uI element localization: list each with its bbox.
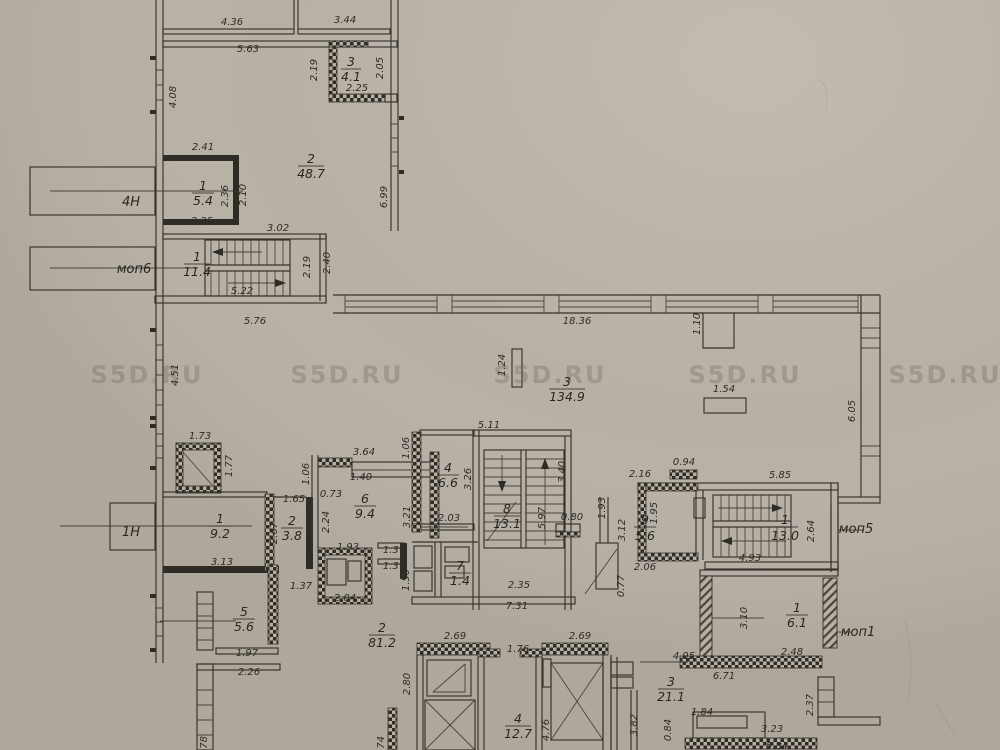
dim-label: 1.37: [383, 545, 406, 556]
svg-text:1: 1: [781, 512, 789, 527]
dim-label: 2.41: [192, 142, 214, 153]
dim-label: 6.99: [379, 186, 390, 208]
svg-text:48.7: 48.7: [297, 166, 325, 181]
dim-label: 2.19: [309, 59, 320, 81]
svg-text:1.4: 1.4: [450, 573, 470, 588]
dim-label: 1.84: [691, 707, 713, 718]
svg-text:2: 2: [288, 513, 296, 528]
dim-label: 1.65: [283, 494, 305, 505]
dim-label: 4.95: [673, 651, 695, 662]
watermark: S5D.RU: [689, 361, 802, 389]
svg-text:7: 7: [456, 558, 464, 573]
svg-text:134.9: 134.9: [549, 389, 585, 404]
svg-text:6.6: 6.6: [438, 475, 458, 490]
dim-label: 1.10: [692, 313, 703, 335]
dim-label: 1.97: [236, 648, 259, 659]
dim-label: 2.69: [569, 631, 591, 642]
dim-label: 1.93: [337, 542, 359, 553]
dim-label: 2.19: [302, 256, 313, 278]
svg-text:6.1: 6.1: [787, 615, 807, 630]
svg-text:2: 2: [378, 620, 386, 635]
dim-label: 0.84: [663, 719, 674, 741]
svg-text:1: 1: [216, 511, 224, 526]
svg-text:81.2: 81.2: [368, 635, 396, 650]
dim-label: 2.80: [402, 673, 413, 695]
dim-label: 2.06: [634, 562, 656, 573]
dim-label: 1.54: [713, 384, 735, 395]
dim-label: 4.51: [170, 364, 181, 386]
dim-label: 0.80: [561, 512, 583, 523]
svg-text:3.8: 3.8: [282, 528, 302, 543]
dim-label: 2.64: [806, 520, 817, 542]
dim-label: 3.26: [463, 468, 474, 490]
svg-text:11.4: 11.4: [183, 264, 211, 279]
dim-label: 3.44: [334, 15, 356, 26]
dim-label: 2.35: [508, 580, 530, 591]
dim-label: 4.08: [168, 86, 179, 108]
dim-label: 2.37: [805, 693, 816, 716]
dim-label: 4.93: [739, 553, 761, 564]
floor-plan-drawing: S5D.RU S5D.RU S5D.RU S5D.RU S5D.RU 15.4 …: [0, 0, 1000, 750]
dim-label: 3.23: [761, 724, 783, 735]
svg-text:1: 1: [199, 178, 207, 193]
dim-label: 2.24: [321, 511, 332, 533]
dim-label: 2.48: [781, 647, 803, 658]
dim-label: 1.76: [507, 644, 529, 655]
dim-label: 1.93: [597, 497, 608, 519]
dim-label: 5.97: [537, 506, 548, 529]
svg-text:3: 3: [347, 54, 355, 69]
dim-label: 2.05: [375, 57, 386, 79]
dim-label: 1.37: [290, 581, 313, 592]
dim-label: .78: [199, 736, 210, 750]
dim-label: 0.77: [616, 574, 627, 597]
svg-text:12.7: 12.7: [504, 726, 532, 741]
dim-label: 2.10: [238, 184, 249, 206]
dim-label: 1.40: [350, 472, 372, 483]
dim-label: 2.67: [269, 521, 280, 544]
dim-label: 6.05: [847, 400, 858, 422]
dim-label: 1.50: [401, 569, 412, 591]
dim-label: 5.22: [231, 286, 253, 297]
dim-label: 18.36: [563, 316, 592, 327]
dim-label: 5.11: [478, 420, 500, 431]
porch-label: моп5: [839, 522, 874, 537]
dim-label: 2.25: [191, 216, 213, 227]
dim-label: 3.40: [557, 461, 568, 483]
svg-text:5: 5: [240, 604, 248, 619]
dim-label: 3.10: [739, 607, 750, 629]
watermark: S5D.RU: [91, 361, 204, 389]
porch-label: 1Н: [122, 525, 140, 540]
svg-text:2: 2: [307, 151, 315, 166]
dim-label: 2.25: [346, 83, 368, 94]
dim-label: 2.36: [220, 185, 231, 207]
svg-text:6: 6: [361, 491, 369, 506]
watermark: S5D.RU: [291, 361, 404, 389]
floor-plan-scan: S5D.RU S5D.RU S5D.RU S5D.RU S5D.RU 15.4 …: [0, 0, 1000, 750]
dim-label: 1.06: [401, 437, 412, 459]
dim-label: 3.21: [402, 506, 413, 528]
dim-label: 3.64: [353, 447, 375, 458]
dim-label: 7.31: [506, 601, 528, 612]
dim-label: 0.94: [673, 457, 695, 468]
dim-label: 2.26: [238, 667, 260, 678]
dim-label: 5.63: [237, 44, 259, 55]
svg-text:13.0: 13.0: [771, 528, 799, 543]
dim-label: 5.76: [244, 316, 266, 327]
dim-label: 2.40: [322, 252, 333, 274]
dim-label: 3.02: [267, 223, 289, 234]
svg-text:5.6: 5.6: [635, 528, 655, 543]
svg-text:4: 4: [444, 460, 452, 475]
svg-text:1: 1: [193, 249, 201, 264]
svg-text:13.1: 13.1: [493, 516, 521, 531]
dim-label: 2.69: [444, 631, 466, 642]
dim-label: 3.82: [629, 714, 640, 736]
svg-text:9: 9: [641, 512, 649, 527]
dim-label: 2.04: [334, 593, 356, 604]
dim-label: 4.36: [221, 17, 243, 28]
dim-label: 3.13: [211, 557, 233, 568]
porch-label: моп1: [841, 625, 876, 640]
dim-label: 1.73: [189, 431, 211, 442]
watermark: S5D.RU: [494, 361, 607, 389]
svg-text:9.2: 9.2: [210, 526, 230, 541]
dim-label: 4.76: [541, 719, 552, 741]
dim-label: 6.71: [713, 671, 735, 682]
dim-label: 2.16: [629, 469, 651, 480]
svg-text:21.1: 21.1: [657, 689, 685, 704]
svg-text:5.6: 5.6: [234, 619, 254, 634]
svg-text:3: 3: [667, 674, 675, 689]
dim-label: 1.95: [649, 502, 660, 524]
dim-label: 1.24: [497, 354, 508, 376]
dim-label: 2.03: [438, 513, 460, 524]
dim-label: 1.77: [224, 454, 235, 477]
dim-label: 5.84: [766, 741, 788, 750]
svg-text:5.4: 5.4: [193, 193, 213, 208]
svg-text:9.4: 9.4: [355, 506, 375, 521]
dim-label: 0.73: [320, 489, 342, 500]
dim-label: 1.06: [301, 463, 312, 485]
dim-label: 5.85: [769, 470, 791, 481]
svg-text:1: 1: [793, 600, 801, 615]
watermark: S5D.RU: [889, 361, 1000, 389]
svg-text:3: 3: [563, 374, 571, 389]
porch-label: моп6: [117, 262, 152, 277]
dim-label: 3.12: [617, 519, 628, 541]
dim-label: .74: [376, 736, 387, 750]
porch-label: 4Н: [122, 195, 140, 210]
svg-text:4.1: 4.1: [341, 69, 361, 84]
svg-text:8: 8: [503, 501, 511, 516]
svg-text:4: 4: [514, 711, 522, 726]
